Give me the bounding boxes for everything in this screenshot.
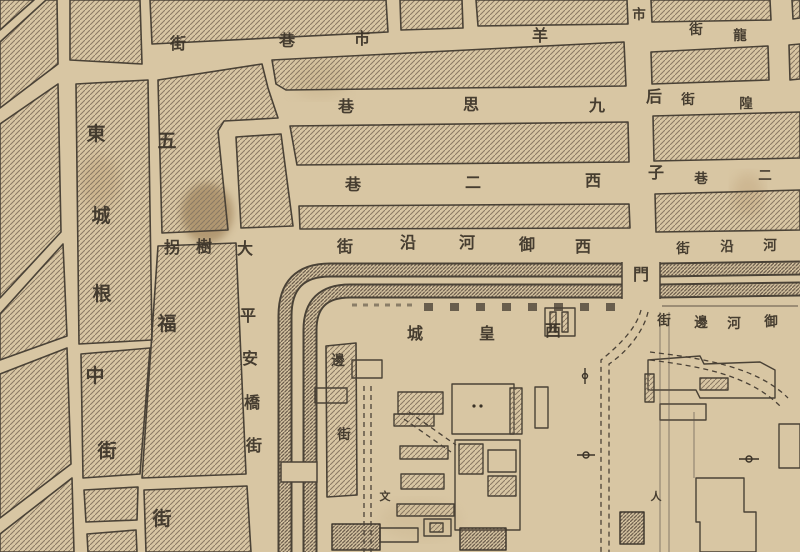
label-char: 沿 <box>720 239 734 255</box>
building-dark <box>332 524 380 550</box>
label-char: 五 <box>157 130 176 152</box>
street-label-fragment-shi: 市 <box>632 6 646 23</box>
label-char: 御 <box>763 313 778 330</box>
label-char: 中 <box>85 364 104 387</box>
city-block <box>87 530 137 552</box>
label-char: 隍 <box>739 95 753 112</box>
city-block <box>651 0 771 22</box>
label-char: 樹 <box>196 237 212 256</box>
building <box>401 474 444 489</box>
building <box>400 446 448 459</box>
city-block <box>76 80 152 344</box>
label-char: 巷 <box>344 175 362 194</box>
label-char: 人 <box>651 489 663 503</box>
building <box>700 378 728 390</box>
label-char: 橋 <box>244 393 261 412</box>
label-char: 街 <box>336 426 351 443</box>
label-char: 根 <box>92 282 111 305</box>
label-char: 街 <box>688 21 703 38</box>
label-char: 街 <box>151 507 171 530</box>
label-char: 街 <box>96 439 116 462</box>
gate-tower-pier <box>562 312 568 332</box>
label-char: 邊 <box>694 314 708 331</box>
city-block <box>651 46 769 84</box>
building <box>645 374 654 402</box>
historical-map-page: 東 城 根 中 街 五 福 街 拐 樹 大 平 安 橋 街 巷 市 羊 街 <box>0 0 800 552</box>
city-block <box>70 0 142 64</box>
building-dark <box>460 528 506 550</box>
street-label-dashuguai: 拐 樹 大 <box>164 237 253 258</box>
label-char: 御 <box>518 235 535 254</box>
label-char: 街 <box>675 240 690 257</box>
label-char: 街 <box>245 436 262 455</box>
building <box>488 476 516 496</box>
label-char: 沿 <box>400 233 416 252</box>
label-char: 文 <box>380 489 392 503</box>
building <box>510 388 522 434</box>
label-char: 龍 <box>733 27 747 44</box>
west-wall-gate <box>281 462 317 482</box>
city-block <box>290 122 629 165</box>
label-char: 邊 <box>331 352 345 369</box>
building <box>459 444 483 474</box>
city-block <box>653 112 800 161</box>
label-char: 巷 <box>278 31 296 50</box>
label-char: 平 <box>240 306 256 325</box>
label-char: 門 <box>633 265 649 284</box>
label-char: 拐 <box>164 238 180 257</box>
label-char: 后 <box>646 87 662 106</box>
label-char: 街 <box>680 91 695 108</box>
label-char: 市 <box>632 6 646 23</box>
label-char: 九 <box>588 96 605 115</box>
label-char: 羊 <box>532 26 548 45</box>
label-char: 街 <box>336 237 353 256</box>
label-char: 西 <box>545 321 561 340</box>
building <box>398 392 443 414</box>
label-char: 河 <box>763 237 777 254</box>
street-label-fragment-jie: 街 <box>169 34 186 53</box>
dot-mark <box>479 404 482 407</box>
city-block <box>792 0 800 19</box>
label-char: 西 <box>585 171 601 190</box>
label-char: 子 <box>648 163 664 182</box>
label-char: 皇 <box>479 324 495 343</box>
label-char: 東 <box>86 122 105 145</box>
label-char: 河 <box>459 233 475 252</box>
label-char: 安 <box>242 349 258 368</box>
city-block <box>655 190 800 232</box>
label-char: 城 <box>407 324 423 343</box>
label-char: 市 <box>354 29 370 48</box>
city-block <box>400 0 463 30</box>
label-char: 大 <box>237 239 253 258</box>
city-block <box>476 0 628 26</box>
label-char: 街 <box>169 34 186 53</box>
label-char: 思 <box>463 95 479 114</box>
building <box>394 414 434 426</box>
label-char: 巷 <box>337 97 355 116</box>
building <box>430 523 443 532</box>
label-char: 福 <box>156 312 176 335</box>
label-char: 河 <box>727 315 741 332</box>
map-canvas: 東 城 根 中 街 五 福 街 拐 樹 大 平 安 橋 街 巷 市 羊 街 <box>0 0 800 552</box>
label-char: 西 <box>575 237 591 256</box>
city-block <box>142 243 246 478</box>
dot-mark <box>472 404 475 407</box>
building-dark <box>620 512 644 544</box>
label-char: 二 <box>465 173 481 192</box>
building-label-ren: 人 <box>651 489 663 503</box>
building-label-wen: 文 <box>380 489 392 503</box>
building <box>397 504 454 516</box>
city-block <box>299 204 630 229</box>
label-char: 巷 <box>693 170 708 187</box>
label-char: 二 <box>758 168 772 184</box>
city-block <box>84 487 138 522</box>
label-char: 城 <box>91 204 110 227</box>
city-block <box>789 44 800 80</box>
label-char: 街 <box>656 312 671 329</box>
